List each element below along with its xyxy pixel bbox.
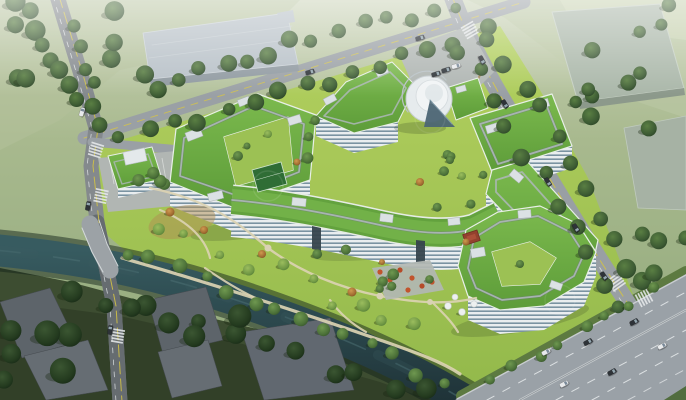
tree bbox=[249, 297, 263, 311]
tree bbox=[367, 338, 377, 348]
tree bbox=[553, 130, 567, 144]
tree bbox=[147, 167, 159, 179]
tree bbox=[425, 275, 434, 284]
tree bbox=[650, 232, 667, 249]
architectural-rendering-stage bbox=[0, 0, 686, 400]
umbrella bbox=[377, 269, 382, 274]
tree bbox=[328, 301, 337, 310]
tree bbox=[463, 239, 470, 246]
path-node-plaza bbox=[377, 293, 384, 300]
tree bbox=[302, 152, 313, 163]
roof-box bbox=[380, 213, 394, 223]
tree bbox=[379, 259, 385, 265]
tree bbox=[183, 325, 205, 347]
tree bbox=[645, 264, 662, 281]
tree bbox=[327, 365, 345, 383]
snake-portal bbox=[312, 226, 321, 251]
tree bbox=[387, 282, 396, 291]
tree bbox=[387, 269, 399, 281]
tree bbox=[243, 264, 255, 276]
roof-box bbox=[518, 209, 532, 218]
tree bbox=[317, 323, 330, 336]
tree bbox=[578, 180, 595, 197]
path-node-plaza bbox=[265, 245, 272, 252]
tree bbox=[294, 159, 301, 166]
tree bbox=[244, 143, 251, 150]
tree bbox=[385, 346, 399, 360]
tree bbox=[344, 363, 362, 381]
tree bbox=[337, 328, 349, 340]
tree bbox=[158, 312, 179, 333]
top-haze bbox=[0, 0, 686, 96]
tree bbox=[61, 281, 83, 303]
tree bbox=[581, 320, 593, 332]
tree bbox=[268, 303, 280, 315]
tree bbox=[123, 299, 141, 317]
tree bbox=[309, 274, 318, 283]
path-node-plaza bbox=[427, 299, 433, 305]
tree bbox=[304, 132, 313, 141]
tree bbox=[446, 156, 454, 164]
tree bbox=[516, 260, 524, 268]
tree bbox=[258, 335, 275, 352]
tree bbox=[466, 199, 475, 208]
tree bbox=[532, 98, 547, 113]
tree bbox=[223, 103, 236, 116]
tree bbox=[506, 360, 518, 372]
tree bbox=[258, 250, 266, 258]
tree bbox=[153, 223, 165, 235]
tree bbox=[112, 131, 124, 143]
tree bbox=[2, 344, 22, 364]
tree bbox=[386, 380, 405, 399]
tree bbox=[247, 94, 264, 111]
tree bbox=[593, 212, 608, 227]
tree bbox=[216, 251, 224, 259]
tree bbox=[341, 245, 351, 255]
tree bbox=[141, 250, 155, 264]
tree bbox=[123, 250, 134, 261]
scene-root bbox=[0, 0, 686, 400]
tree bbox=[540, 166, 553, 179]
tree bbox=[34, 320, 60, 346]
tree bbox=[606, 231, 622, 247]
tree bbox=[479, 171, 487, 179]
tree bbox=[264, 130, 272, 138]
tree bbox=[578, 244, 593, 259]
tree bbox=[348, 288, 357, 297]
tree bbox=[219, 285, 234, 300]
tree bbox=[416, 178, 424, 186]
tree bbox=[179, 229, 188, 238]
tree bbox=[569, 96, 581, 108]
tree bbox=[188, 114, 206, 132]
tree bbox=[166, 208, 175, 217]
dome-tent bbox=[459, 309, 466, 316]
tree bbox=[58, 323, 82, 347]
umbrella bbox=[419, 283, 424, 288]
tree bbox=[376, 285, 384, 293]
tree bbox=[635, 227, 650, 242]
tree bbox=[142, 120, 159, 137]
tree bbox=[439, 166, 449, 176]
dome-tent bbox=[471, 301, 477, 307]
tree bbox=[310, 116, 320, 126]
tree bbox=[312, 249, 322, 259]
tree bbox=[612, 301, 625, 314]
tree bbox=[512, 149, 530, 167]
tree bbox=[0, 320, 21, 341]
tree bbox=[416, 378, 437, 399]
tree bbox=[202, 271, 212, 281]
dome-tent bbox=[445, 303, 452, 310]
tree bbox=[357, 298, 371, 312]
tree bbox=[433, 203, 442, 212]
tree bbox=[200, 226, 208, 234]
tree bbox=[563, 156, 578, 171]
tree bbox=[624, 301, 634, 311]
aerial-campus-rendering bbox=[0, 0, 686, 400]
tree bbox=[616, 259, 636, 279]
tree bbox=[50, 358, 76, 384]
tree bbox=[439, 378, 449, 388]
car-body bbox=[107, 325, 112, 334]
snake-portal bbox=[416, 240, 425, 263]
tree bbox=[84, 98, 101, 115]
tree bbox=[287, 342, 305, 360]
tree bbox=[173, 258, 188, 273]
tree bbox=[649, 282, 660, 293]
tree bbox=[132, 174, 144, 186]
tree bbox=[458, 172, 466, 180]
dome-tent bbox=[452, 294, 458, 300]
tree bbox=[485, 375, 495, 385]
tree bbox=[233, 151, 243, 161]
tree bbox=[278, 258, 290, 270]
tree bbox=[294, 312, 309, 327]
car-windshield bbox=[108, 327, 112, 330]
roof-box bbox=[292, 197, 307, 206]
tree bbox=[408, 317, 421, 330]
tree bbox=[599, 311, 608, 320]
umbrella bbox=[409, 275, 414, 280]
tree bbox=[168, 114, 182, 128]
roof-box bbox=[448, 217, 461, 225]
tree bbox=[641, 120, 657, 136]
tree bbox=[92, 117, 108, 133]
tree bbox=[553, 341, 563, 351]
tree bbox=[582, 108, 600, 126]
tree bbox=[550, 199, 566, 215]
tree bbox=[98, 298, 113, 313]
tree bbox=[496, 119, 511, 134]
tree bbox=[228, 304, 252, 328]
umbrella bbox=[405, 287, 410, 292]
tree bbox=[376, 315, 387, 326]
